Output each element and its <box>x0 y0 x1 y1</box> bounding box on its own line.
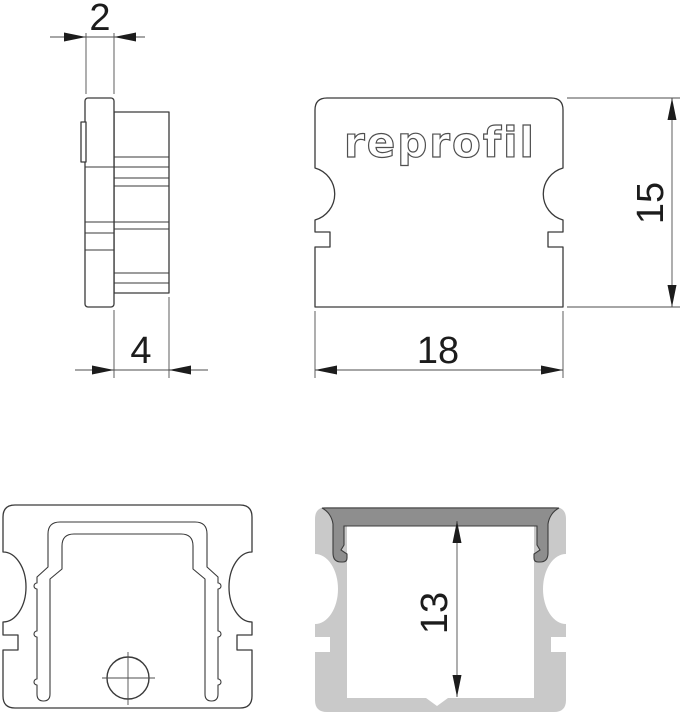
reprofil-logo: reprofil <box>344 118 536 167</box>
dimension-cap-thickness: 2 <box>50 0 145 94</box>
dimension-13-label: 13 <box>414 592 456 634</box>
cap-side-tab <box>81 122 86 162</box>
dimension-insert-depth: 4 <box>75 297 208 378</box>
dimension-2-label: 2 <box>89 0 110 39</box>
dimension-outer-height: 15 <box>567 98 680 307</box>
technical-drawing-canvas: 2 4 <box>0 0 682 720</box>
dimension-15-label: 15 <box>630 182 672 224</box>
section-view: 13 <box>280 480 682 720</box>
rear-view <box>0 480 280 720</box>
dimension-4-label: 4 <box>130 330 151 372</box>
dimension-18-label: 18 <box>417 330 459 372</box>
side-view: 2 4 <box>0 0 260 400</box>
dimension-outer-width: 18 <box>315 311 563 378</box>
front-face-view: reprofil 18 15 <box>280 80 682 400</box>
